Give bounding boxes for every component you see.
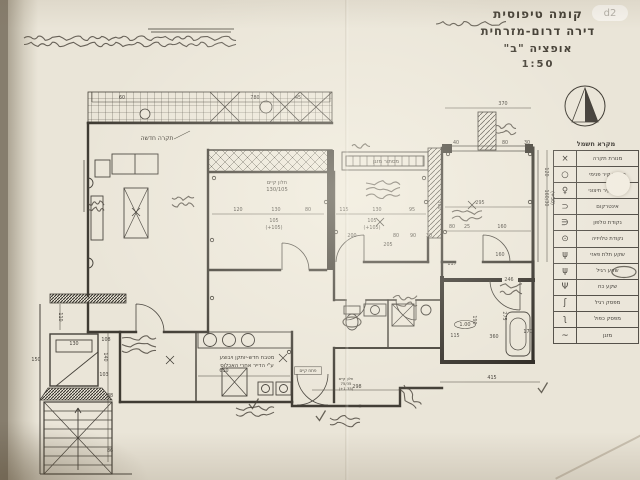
dimension-text: 160/30 — [543, 190, 549, 207]
stair-landing-hatch — [40, 388, 112, 400]
tv-point-icon: ⊙ — [554, 231, 577, 246]
dimension-text: 80 — [449, 224, 455, 230]
dimension-text: 108 — [101, 337, 110, 343]
dimension-text: 86 — [107, 448, 113, 454]
dimension-text: 115 — [339, 207, 348, 213]
dimension-text: (+105) — [266, 225, 283, 231]
legend-row: ʃמפסק רגיל — [554, 296, 638, 312]
legend-row-label: אינטרקום — [577, 204, 638, 210]
pier-hatch-1 — [428, 148, 442, 238]
kitchen-appliances — [258, 382, 291, 395]
dimension-text: 160 — [497, 224, 506, 230]
bottom-center-note — [330, 416, 360, 427]
top-note-underline — [148, 29, 234, 32]
dimension-text: 170 — [523, 329, 532, 335]
security-room-note — [500, 284, 522, 295]
dimension-text: 90 — [410, 233, 416, 239]
dimension-text: 160 — [495, 252, 504, 258]
right-bedroom-note — [452, 210, 482, 220]
dimension-text: 360 — [489, 334, 498, 340]
dimension-text: 117 — [447, 261, 456, 267]
dimension-text: 115 — [450, 333, 459, 339]
parents-top-note — [352, 144, 370, 148]
dimension-text: 105 — [367, 218, 376, 224]
scanned-floor-plan-page: 780604537040803012013080105(+105)1151309… — [0, 0, 640, 480]
dimension-text: 95 — [409, 207, 415, 213]
sofa — [112, 154, 158, 174]
ceiling-light-x — [376, 218, 384, 226]
plan-label: תקרה חדשה — [141, 135, 174, 142]
plan-label: 130/105 — [266, 187, 288, 193]
socket-points — [210, 152, 531, 353]
parents-room-note — [366, 181, 400, 199]
power-socket-icon: Ψ — [554, 280, 577, 295]
exterior-wall-light-icon: ♀ — [554, 183, 577, 198]
sink-counter — [364, 304, 386, 316]
living-room-note — [172, 196, 194, 207]
plan-label: מטבח חדש-יותקן ויבוצע — [220, 355, 275, 361]
dimension-text: 110 — [57, 312, 63, 321]
dimension-text: 150 — [31, 357, 40, 363]
window-pier-a — [442, 144, 452, 153]
dimension-text: 80 — [393, 233, 399, 239]
pergola-column — [260, 101, 272, 113]
dimension-text: 140 — [102, 352, 108, 361]
legend-row-label: נקודת טלפון — [577, 220, 638, 226]
dimension-text: 415 — [487, 375, 496, 381]
legend-row-label: שקע כח — [577, 284, 638, 290]
plan-label: (+1.35) — [339, 386, 354, 391]
dimension-text: 130 — [271, 207, 280, 213]
legend-row-label: שקע רגיל — [577, 268, 638, 274]
three-phase-socket-icon: ψ — [554, 248, 577, 263]
legend-row: ψשקע רגיל — [554, 264, 638, 280]
plan-label: חלון קיים — [267, 180, 287, 186]
legend-row: ⊙נקודת טלויזיה — [554, 231, 638, 247]
pier-hatch-2 — [478, 112, 496, 150]
title-line-3: אופציה "ב" — [458, 40, 618, 57]
ceiling-light-icon: × — [554, 151, 577, 166]
entry-pergola-hatch — [208, 150, 332, 172]
dimension-text: 60 — [119, 95, 125, 101]
dimension-text: 200 — [347, 233, 356, 239]
dimension-text: 360 — [436, 200, 442, 209]
bath-note — [393, 296, 417, 307]
dimension-text: 275 — [501, 311, 507, 320]
legend-title: מקרא חשמל — [553, 140, 639, 148]
check-mark-3 — [316, 411, 326, 421]
double-switch-icon: ʅ — [554, 312, 577, 327]
dimension-text: 295 — [475, 200, 484, 206]
legend-row: ⊂אינטרקום — [554, 199, 638, 215]
legend-row-label: מפסק רגיל — [577, 300, 638, 306]
paper-white-dot — [606, 172, 630, 196]
watermark-badge: d2 — [592, 5, 628, 21]
armchair — [95, 160, 110, 177]
ceiling-light-x — [279, 354, 287, 362]
boiler — [421, 305, 431, 315]
dimension-text: 105 — [269, 218, 278, 224]
regular-switch-icon: ʃ — [554, 296, 577, 311]
top-right-note — [496, 124, 516, 135]
dimension-text: 120 — [233, 207, 242, 213]
legend-row-label: נקודת טלויזיה — [577, 236, 638, 242]
interior-wall-light-icon: ○ — [554, 167, 577, 182]
dimension-text: 80 — [502, 140, 508, 146]
dimension-text: 780 — [250, 95, 259, 101]
scale-label: 1:50 — [458, 57, 618, 72]
legend-row-label: שקע תלת פאזי — [577, 252, 638, 258]
legend-row: ʅמפסק כפול — [554, 312, 638, 328]
plan-label: ע"י הדייר אחרי האכלוס — [220, 363, 274, 369]
dimension-text: 130 — [372, 207, 381, 213]
hatch-zones — [40, 92, 533, 400]
entry-note — [236, 406, 274, 416]
kitchen-counter — [198, 332, 292, 348]
legend-row: ~מזגן — [554, 328, 638, 343]
dimension-text: 30 — [524, 140, 530, 146]
ceiling-light-x — [132, 208, 140, 216]
dimension-text: 45 — [295, 95, 301, 101]
plan-label: פתח קיים — [299, 368, 316, 373]
regular-socket-icon: ψ — [554, 264, 577, 279]
dimension-text: 298 — [352, 384, 361, 390]
plan-label: 1.00 — [459, 322, 470, 328]
legend-row: Ψשקע כח — [554, 280, 638, 296]
electrical-legend: מקרא חשמל ×מנורת תקרה○מנורת קיר פנימי♀מנ… — [553, 140, 639, 344]
dimension-text: 370 — [498, 101, 507, 107]
top-margin-note — [24, 36, 236, 47]
legend-row-label: מנורת תקרה — [577, 156, 638, 162]
check-mark-2 — [538, 383, 548, 393]
coffee-table — [124, 188, 148, 238]
dimension-text: 120 — [543, 167, 549, 176]
legend-row: ∈נקודת טלפון — [554, 215, 638, 231]
dimension-text: 190 — [471, 315, 477, 324]
dimension-text: 205 — [383, 242, 392, 248]
dimension-text: 80 — [305, 207, 311, 213]
pergola-column — [140, 109, 150, 119]
dimension-text: 103 — [99, 372, 108, 378]
ceiling-light-x — [166, 356, 174, 364]
dimension-text: 25 — [464, 224, 470, 230]
legend-row-label: מזגן — [577, 333, 638, 339]
dimension-text: 88 — [107, 393, 113, 399]
dining-note — [122, 336, 156, 353]
dimension-text: 130 — [69, 341, 78, 347]
dimension-text: 30 — [426, 233, 432, 239]
north-arrow-icon — [565, 86, 605, 126]
air-conditioner-icon: ~ — [554, 328, 577, 343]
dimension-text: 40 — [453, 140, 459, 146]
dimension-text: (+105) — [364, 225, 381, 231]
legend-row-label: מפסק כפול — [577, 316, 638, 322]
staircase — [44, 402, 112, 474]
plan-label: מסתור מזגן — [373, 159, 399, 165]
west-wall-note — [88, 201, 104, 211]
dimension-text: 246 — [504, 277, 513, 283]
thin-linework — [40, 146, 538, 474]
floor-plan-drawing: 780604537040803012013080105(+105)1151309… — [0, 0, 640, 480]
label-leader — [174, 131, 190, 139]
phone-point-icon: ∈ — [554, 215, 577, 230]
title-line-2: דירה דרום-מזרחית — [458, 23, 618, 40]
legend-row: ψשקע תלת פאזי — [554, 248, 638, 264]
intercom-icon: ⊂ — [554, 199, 577, 214]
legend-row: ×מנורת תקרה — [554, 151, 638, 167]
